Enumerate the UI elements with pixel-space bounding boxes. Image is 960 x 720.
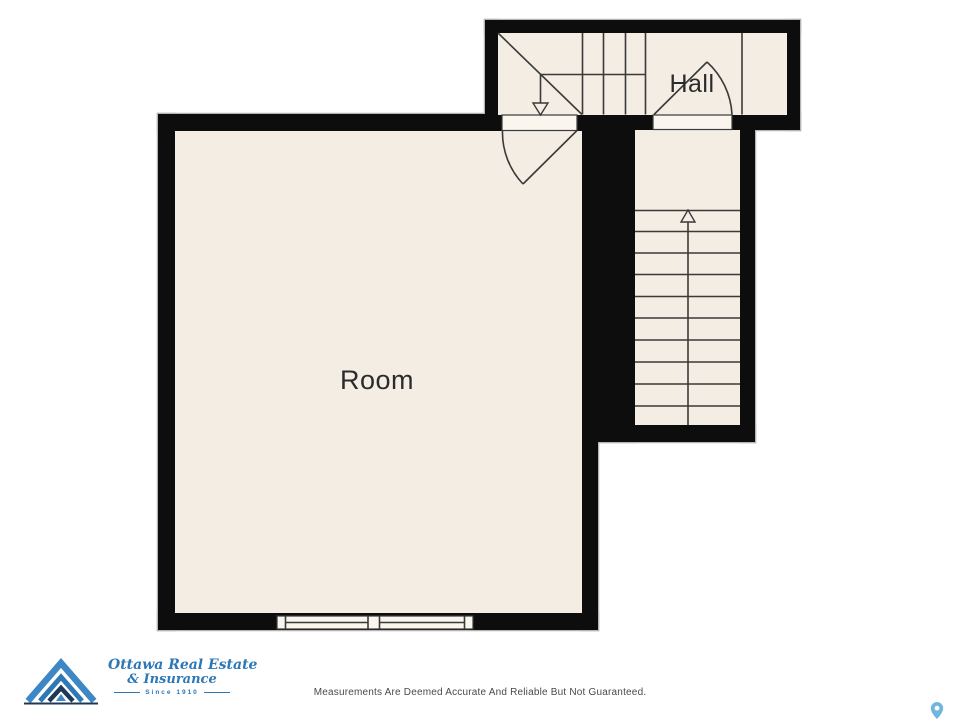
floor-plan-drawing: Room Hall [0, 0, 960, 660]
hall-door-threshold [653, 115, 732, 130]
logo-name-line1: Ottawa Real Estate [108, 658, 236, 673]
location-pin-icon [929, 701, 945, 720]
floor-plan-page: Room Hall Ottawa Real Estate & Insurance… [0, 0, 960, 720]
room-door-threshold [502, 115, 577, 131]
hall-label: Hall [669, 70, 714, 98]
pin-hole [935, 706, 940, 711]
mountain-chevrons-icon [24, 658, 102, 708]
room-label: Room [340, 365, 414, 395]
brand-logo: Ottawa Real Estate & Insurance Since 191… [24, 656, 244, 712]
disclaimer-text: Measurements Are Deemed Accurate And Rel… [0, 687, 960, 698]
logo-name-line2: & Insurance [108, 673, 236, 687]
